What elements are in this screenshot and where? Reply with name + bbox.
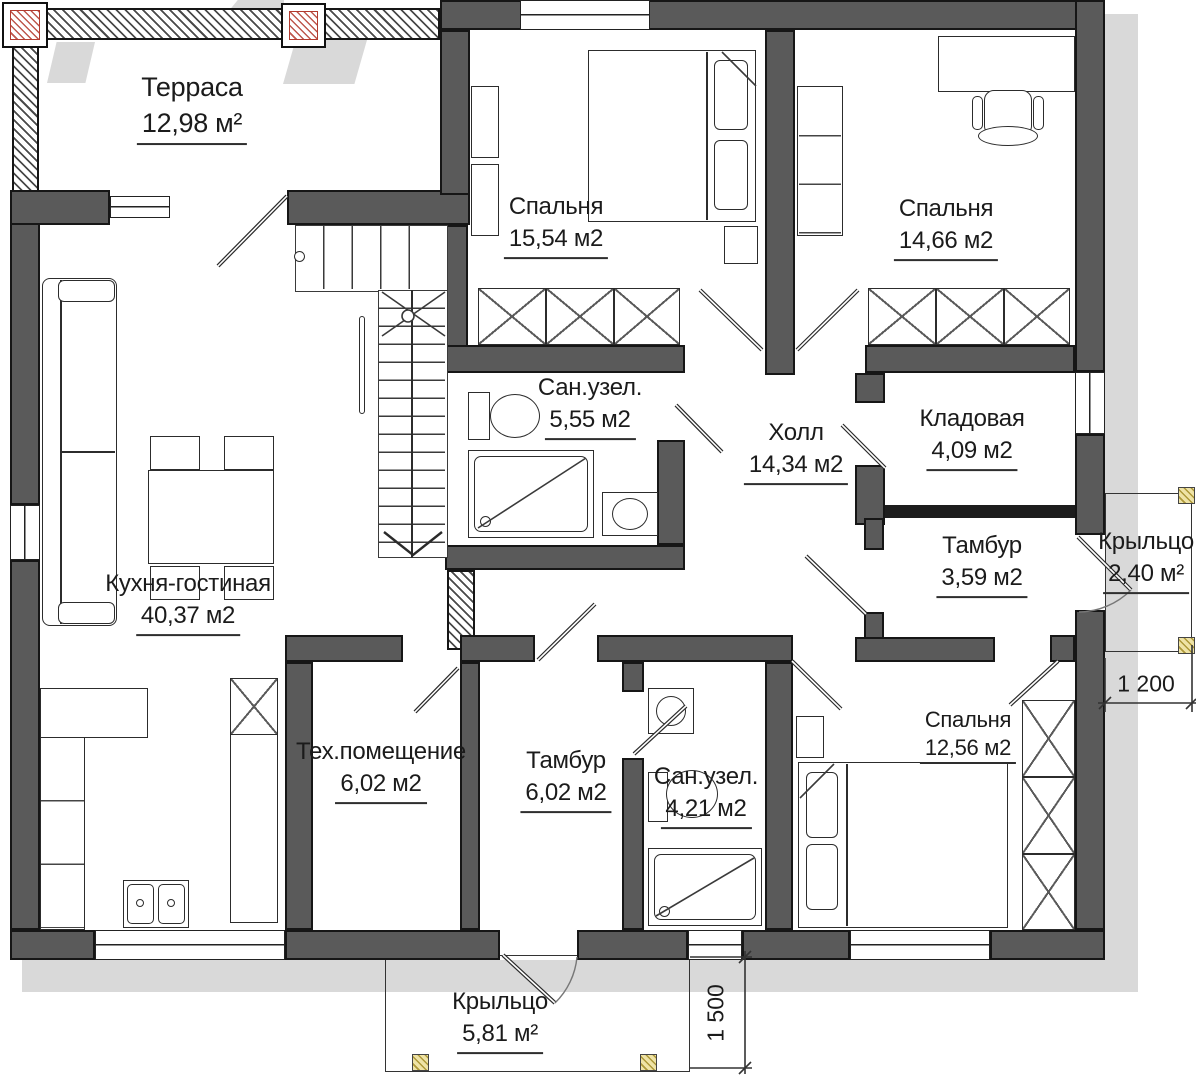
- dimension-label-porch-right: 1 200: [1117, 671, 1175, 698]
- terrace-wall-hatched: [10, 8, 440, 40]
- room-label-bathroom2: Сан.узел. 4,21 м2: [654, 761, 758, 829]
- wall-segment: [990, 930, 1105, 960]
- pillow: [806, 844, 838, 910]
- toilet-bowl: [490, 394, 540, 438]
- room-area: 3,59 м2: [936, 563, 1027, 598]
- room-label-bedroom2: Спальня 14,66 м2: [894, 193, 998, 261]
- floor-plan: Терраса 12,98 м² Спальня 15,54 м2 Спальн…: [0, 0, 1196, 1080]
- wall-segment: [10, 190, 110, 225]
- wardrobe: [1022, 777, 1075, 854]
- wall-segment: [885, 505, 1075, 518]
- wall-segment: [622, 662, 644, 692]
- door-leaf: [842, 425, 885, 468]
- desk: [938, 36, 1075, 92]
- stove: [230, 678, 278, 735]
- door-leaf: [700, 290, 762, 350]
- door-leaf: [538, 604, 595, 660]
- room-label-porch-right: Крыльцо 2,40 м²: [1098, 526, 1194, 594]
- terrace-wall-hatched: [12, 40, 39, 192]
- window: [95, 930, 285, 960]
- room-label-vestibule1: Тамбур 3,59 м2: [936, 530, 1027, 598]
- door-leaf: [415, 668, 458, 712]
- wall-segment: [1050, 635, 1075, 662]
- room-area: 5,81 м²: [457, 1019, 543, 1054]
- room-area: 5,55 м2: [544, 405, 635, 440]
- wardrobe: [478, 288, 546, 345]
- room-area: 14,34 м2: [744, 450, 848, 485]
- wall-segment: [285, 635, 403, 662]
- room-name: Терраса: [137, 69, 247, 105]
- porch-column: [640, 1054, 657, 1071]
- room-name: Спальня: [920, 706, 1016, 734]
- room-name: Спальня: [504, 191, 608, 223]
- wall-segment: [597, 635, 793, 662]
- room-label-kitchen-living: Кухня-гостиная 40,37 м2: [105, 568, 271, 636]
- room-name: Крыльцо: [452, 986, 548, 1018]
- door-leaf: [218, 196, 287, 266]
- office-chair-armrest: [1033, 96, 1044, 130]
- wardrobe: [1022, 854, 1075, 930]
- shower-inner: [474, 456, 588, 532]
- door-leaf: [792, 661, 841, 709]
- room-label-bedroom1: Спальня 15,54 м2: [504, 191, 608, 259]
- kitchen-counter: [40, 688, 148, 738]
- porch-column: [412, 1054, 429, 1071]
- sink-drain: [136, 899, 144, 907]
- wardrobe: [1004, 288, 1070, 345]
- porch-column: [1178, 637, 1195, 654]
- wall-segment: [445, 345, 685, 373]
- wall-segment: [285, 930, 500, 960]
- pillow: [714, 140, 748, 210]
- terrace-column: [10, 10, 40, 40]
- shadow-terrace-column: [47, 42, 95, 83]
- dining-table: [148, 470, 274, 564]
- shelf: [471, 164, 499, 236]
- window: [110, 196, 170, 218]
- window: [688, 930, 742, 960]
- room-label-storage: Кладовая 4,09 м2: [919, 403, 1024, 471]
- room-name: Спальня: [894, 193, 998, 225]
- window: [10, 505, 40, 560]
- bed-line: [706, 52, 708, 220]
- dimension-label-porch-bottom: 1 500: [703, 984, 730, 1042]
- wardrobe: [546, 288, 614, 345]
- room-area: 12,56 м2: [920, 734, 1016, 765]
- room-label-terrace: Терраса 12,98 м²: [137, 69, 247, 145]
- room-name: Тамбур: [520, 745, 611, 777]
- pillow: [806, 772, 838, 838]
- wall-segment: [10, 930, 95, 960]
- window: [520, 0, 650, 30]
- door-leaf: [1010, 661, 1058, 705]
- wardrobe: [936, 288, 1004, 345]
- wardrobe: [1022, 700, 1075, 777]
- couch-cushions: [799, 88, 841, 234]
- window: [850, 930, 990, 960]
- nightstand: [796, 716, 824, 758]
- sofa-armrest: [58, 280, 115, 302]
- room-name: Кухня-гостиная: [105, 568, 271, 600]
- stairs-stringer: [411, 290, 413, 558]
- wall-segment: [864, 612, 884, 640]
- door-leaf: [797, 290, 858, 350]
- wall-segment: [657, 440, 685, 545]
- room-name: Сан.узел.: [538, 372, 642, 404]
- sink-basin: [612, 498, 648, 530]
- room-name: Сан.узел.: [654, 761, 758, 793]
- wall-segment: [445, 545, 685, 570]
- room-area: 4,21 м2: [660, 794, 751, 829]
- chair: [224, 436, 274, 470]
- room-label-hall: Холл 14,34 м2: [744, 417, 848, 485]
- room-area: 14,66 м2: [894, 226, 998, 261]
- wall-segment: [1075, 0, 1105, 372]
- room-name: Кладовая: [919, 403, 1024, 435]
- wall-segment: [855, 637, 995, 662]
- room-label-bedroom3: Спальня 12,56 м2: [920, 706, 1016, 764]
- stairs-newel-post: [294, 251, 305, 262]
- window: [1075, 372, 1105, 434]
- room-area: 6,02 м2: [335, 769, 426, 804]
- sink-basin: [656, 696, 686, 726]
- door-leaf: [806, 556, 866, 614]
- wall-segment: [855, 373, 885, 403]
- wall-segment: [622, 758, 644, 930]
- wall-segment: [855, 465, 885, 525]
- shower-drain: [659, 906, 670, 917]
- shadow-right: [1105, 14, 1138, 960]
- wall-segment: [10, 195, 40, 505]
- wall-segment: [865, 345, 1075, 373]
- sofa-seat-line: [62, 451, 115, 453]
- room-area: 6,02 м2: [520, 778, 611, 813]
- stairs-treads: [296, 226, 414, 289]
- chair: [150, 436, 200, 470]
- wall-segment: [577, 930, 688, 960]
- stairs-handrail: [359, 316, 365, 414]
- shelf: [471, 86, 499, 158]
- wall-segment: [460, 635, 535, 662]
- sink-drain: [167, 899, 175, 907]
- wall-segment: [445, 225, 468, 347]
- room-name: Крыльцо: [1098, 526, 1194, 558]
- room-area: 40,37 м2: [136, 601, 240, 636]
- room-label-porch-bottom: Крыльцо 5,81 м²: [452, 986, 548, 1054]
- pillow: [714, 60, 748, 130]
- bed-line: [846, 764, 848, 926]
- wall-segment: [765, 30, 795, 375]
- wall-segment: [1075, 610, 1105, 930]
- room-area: 2,40 м²: [1103, 559, 1189, 594]
- kitchen-counter-divisions: [41, 738, 84, 928]
- wardrobe: [614, 288, 680, 345]
- office-chair-back: [978, 126, 1038, 146]
- wall-segment: [864, 518, 884, 550]
- porch-column: [1178, 487, 1195, 504]
- room-area: 4,09 м2: [926, 436, 1017, 471]
- toilet-tank: [468, 392, 490, 440]
- room-name: Холл: [744, 417, 848, 449]
- office-chair-armrest: [972, 96, 983, 130]
- wall-segment: [10, 560, 40, 930]
- room-label-bathroom1: Сан.узел. 5,55 м2: [538, 372, 642, 440]
- wall-segment: [1075, 434, 1105, 535]
- terrace-column: [289, 11, 318, 40]
- wall-segment: [287, 190, 470, 225]
- room-area: 12,98 м²: [137, 106, 247, 145]
- room-label-vestibule2: Тамбур 6,02 м2: [520, 745, 611, 813]
- room-label-tech-room: Тех.помещение 6,02 м2: [296, 736, 466, 804]
- room-name: Тамбур: [936, 530, 1027, 562]
- wall-segment: [440, 30, 470, 195]
- wall-segment: [765, 662, 793, 930]
- room-name: Тех.помещение: [296, 736, 466, 768]
- wardrobe: [868, 288, 936, 345]
- room-area: 15,54 м2: [504, 224, 608, 259]
- nightstand: [724, 226, 758, 264]
- wall-segment: [742, 930, 850, 960]
- shower-drain: [480, 516, 491, 527]
